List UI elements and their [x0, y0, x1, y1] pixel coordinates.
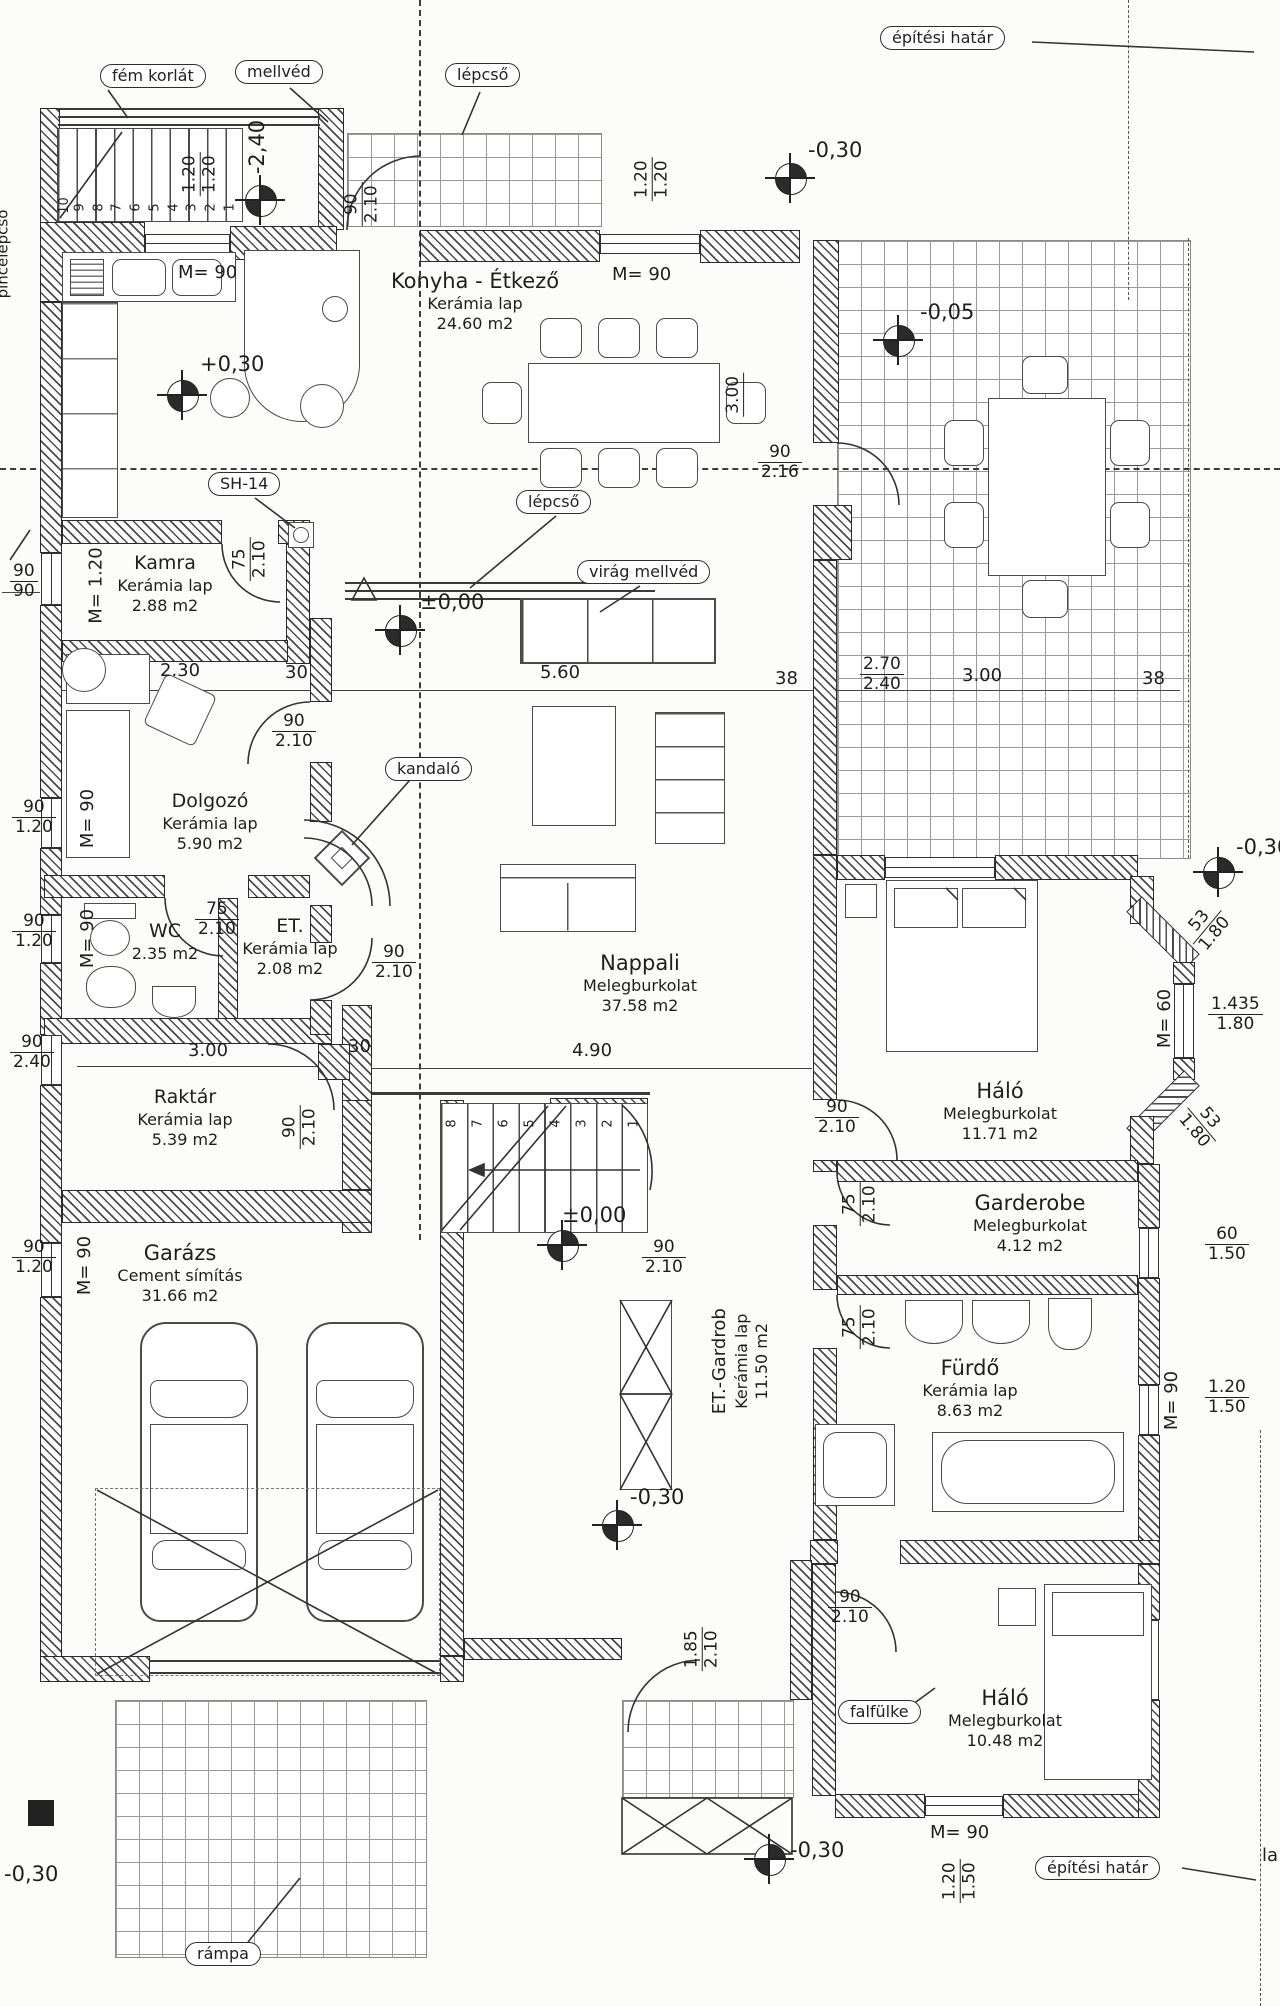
kitchen-stool [300, 384, 344, 428]
kitchen-west-counter [62, 302, 118, 518]
stair-number: 7 [110, 203, 125, 211]
wall-segment [310, 1000, 332, 1035]
furdo-window [1139, 1385, 1159, 1435]
level-value: -0,30 [808, 138, 862, 162]
wall-segment [40, 605, 62, 798]
room-label-halo1: Háló Melegburkolat 11.71 m2 [915, 1078, 1085, 1144]
wardrobe [620, 1300, 672, 1394]
room-label-et: ET. Kerámia lap 2.08 m2 [235, 915, 345, 979]
level-marker [383, 613, 417, 647]
kamra-window [41, 553, 62, 605]
wall-segment [790, 1560, 812, 1700]
leader-epitesi-hatar-bottom [1182, 1868, 1256, 1880]
wall-segment [837, 1160, 1138, 1182]
stair-number: 4 [549, 1119, 564, 1127]
dim-door: 902.10 [343, 182, 381, 226]
wall-segment [813, 505, 852, 560]
wall-segment [837, 855, 885, 880]
washbasin [905, 1300, 963, 1344]
stair-number: 9 [73, 203, 88, 211]
shelf-unit [655, 712, 725, 844]
dim-garderobe-window: 601.50 [1205, 1225, 1249, 1263]
wardrobe [620, 1394, 672, 1490]
dim-nappali-door: 902.10 [372, 943, 416, 981]
leader-fem-korlat [108, 90, 128, 118]
dining-chair [482, 382, 522, 424]
dim-terrace: 2.702.40 [860, 655, 904, 693]
dining-chair [656, 448, 698, 488]
room-label-nappali: Nappali Melegburkolat 37.58 m2 [550, 950, 730, 1016]
wall-segment [700, 230, 800, 263]
stair-number: 5 [523, 1119, 538, 1127]
level-value: +0,30 [200, 352, 264, 376]
dim-m90: M= 90 [612, 264, 671, 285]
car-windshield [316, 1380, 414, 1418]
level-value: ±0,00 [420, 590, 484, 614]
leader-epitesi-hatar-top [1032, 42, 1254, 52]
room-label-wc: WC 2.35 m2 [130, 920, 200, 964]
wall-segment [40, 1085, 62, 1243]
terrace-table [988, 398, 1106, 576]
callout-epitesi-hatar-bottom: építési határ [1035, 1856, 1160, 1880]
terrace-chair [1110, 502, 1150, 548]
dim-line [372, 1068, 812, 1069]
wall-segment [318, 1044, 350, 1080]
level-value: -0,30 [4, 1862, 58, 1886]
room-label-raktar: Raktár Kerámia lap 5.39 m2 [110, 1086, 260, 1150]
terrace-chair [944, 420, 984, 466]
edge-text-fragment: la [1262, 1845, 1278, 1866]
dim-m90: M= 90 [77, 909, 98, 968]
room-label-dolgozo: Dolgozó Kerámia lap 5.90 m2 [130, 790, 290, 854]
callout-kandalo: kandaló [385, 757, 472, 781]
room-label-garderobe: Garderobe Melegburkolat 4.12 m2 [930, 1190, 1130, 1256]
dim-490: 4.90 [572, 1040, 612, 1061]
dim-porch: 1.852.10 [683, 1627, 721, 1671]
stair-number: 8 [445, 1119, 460, 1127]
stair-number: 6 [497, 1119, 512, 1127]
room-label-kamra: Kamra Kerámia lap 2.88 m2 [90, 552, 240, 616]
railing-line [58, 124, 320, 126]
dim-garderobe-door: 752.10 [841, 1182, 879, 1226]
wall-segment [440, 1656, 464, 1682]
boiler-circle [293, 527, 309, 543]
room-label-etgardrob: ET.-Gardrob Kerámia lap 11.50 m2 [709, 1276, 772, 1446]
coffee-table [532, 706, 616, 826]
level-value: -0,05 [920, 300, 974, 324]
level-marker [773, 161, 807, 195]
callout-pincelepcso: pincelépcső [0, 210, 11, 299]
porch-x [622, 1798, 707, 1854]
floor-plan: -2,40 -0,30 +0,30 -0,05 ±0,00 -0,30 ±0,0… [0, 0, 1280, 2006]
level-marker [752, 1842, 786, 1876]
callout-sh14: SH-14 [208, 472, 280, 496]
pillow [962, 888, 1026, 928]
terrace-chair [1110, 420, 1150, 466]
terrace-chair [1022, 580, 1068, 618]
dim-560: 5.60 [540, 662, 580, 683]
dim-line [332, 690, 1180, 691]
wall-segment [1130, 1116, 1154, 1164]
wall-segment [813, 1160, 837, 1172]
level-value: -0,30 [790, 1838, 844, 1862]
callout-lepcso-top: lépcső [445, 63, 520, 87]
callout-virag-mellved: virág mellvéd [577, 560, 710, 584]
leader-lepcso-mid [470, 516, 556, 588]
toilet-bowl [1048, 1298, 1092, 1350]
level-value: -0,30 [1236, 835, 1280, 859]
garderobe-window [1139, 1228, 1159, 1278]
dim-bay-window: 1.4351.80 [1208, 995, 1263, 1033]
wall-segment [40, 302, 62, 553]
porch-tiles [622, 1700, 794, 1798]
axis-vertical [419, 0, 421, 1240]
dim-west: 901.20 [12, 1238, 56, 1276]
sink-bowl [112, 259, 166, 296]
stair-number: 1 [223, 203, 238, 211]
halo1-window [885, 857, 995, 878]
leader-kandalo [352, 780, 410, 845]
dim-halo2-window: 1.201.50 [941, 1859, 979, 1903]
dim-furdo-window: 1.201.50 [1205, 1378, 1249, 1416]
dim-dolgozo-door: 902.10 [272, 712, 316, 750]
kitchen-sink-window [145, 234, 230, 254]
dim-line [77, 1066, 350, 1067]
level-marker [165, 378, 199, 412]
wall-segment [310, 618, 332, 702]
dim-30: 30 [285, 662, 308, 683]
dim-38: 38 [775, 668, 798, 689]
dim-38: 38 [1142, 668, 1165, 689]
callout-lepcso-mid: lépcső [516, 490, 591, 514]
bidet [86, 966, 136, 1008]
wall-segment [342, 1100, 372, 1190]
side-chair [143, 673, 217, 747]
dining-chair [656, 318, 698, 358]
stair-number: 6 [129, 203, 144, 211]
room-label-furdo: Fürdő Kerámia lap 8.63 m2 [885, 1355, 1055, 1421]
car-windshield [150, 1380, 248, 1418]
sofa [500, 864, 636, 932]
stair-number: 2 [204, 203, 219, 211]
dim-m90: M= 90 [74, 1236, 95, 1295]
dim-wc-door: 752.10 [195, 900, 239, 938]
terrace-chair [944, 502, 984, 548]
leader-lepcso-top [462, 92, 480, 135]
dim-furdo-door: 752.10 [841, 1305, 879, 1349]
boundary-line-terrace [1188, 238, 1189, 858]
dim-m90: M= 90 [1161, 1371, 1182, 1430]
dim-230: 2.30 [160, 660, 200, 681]
railing-line [58, 108, 320, 110]
wall-segment [810, 1540, 838, 1564]
dim-m90: M= 90 [930, 1822, 989, 1843]
virag-mellved-window [520, 598, 716, 664]
dining-chair [598, 318, 640, 358]
upper-landing-tiles [347, 133, 602, 227]
dim-window: 1.201.20 [633, 157, 671, 201]
wall-segment [62, 520, 222, 544]
bathtub-inner [941, 1440, 1115, 1504]
level-marker [545, 1228, 579, 1262]
boundary-line-top [1128, 0, 1129, 300]
dim-halo1-door: 902.10 [815, 1098, 859, 1136]
leader-pincelepcso [10, 530, 30, 560]
wall-segment [813, 240, 839, 443]
wall-segment [62, 1190, 372, 1223]
step-line [345, 590, 655, 592]
wall-segment [813, 560, 837, 855]
wall-segment [420, 230, 600, 262]
level-marker [881, 323, 915, 357]
wall-segment [837, 1275, 1138, 1295]
dim-corridor-door: 902.10 [642, 1238, 686, 1276]
stair-number: 3 [185, 203, 200, 211]
level-marker [600, 1508, 634, 1542]
kitchen-stool [322, 296, 348, 322]
dim-terrace-door: 902.16 [758, 443, 802, 481]
stair-number: 5 [148, 203, 163, 211]
stair-number: 10 [57, 197, 72, 214]
porch-x [622, 1798, 707, 1854]
nightstand [845, 884, 877, 918]
callout-fem-korlat: fém korlát [100, 64, 206, 88]
shower-inner [823, 1432, 887, 1498]
nightstand [998, 1588, 1036, 1626]
dim-30: 30 [348, 1036, 371, 1057]
dining-chair [540, 448, 582, 488]
wall-segment [248, 875, 310, 898]
stair-number: 7 [471, 1119, 486, 1127]
stair-number: 3 [575, 1119, 590, 1127]
dim-dining: 3.00 [724, 373, 744, 417]
level-value: -2,40 [245, 120, 269, 174]
dining-chair [598, 448, 640, 488]
wall-segment [1138, 1278, 1160, 1385]
railing-line [58, 116, 320, 118]
wall-segment [835, 1794, 925, 1818]
halo1-bay-window [1174, 984, 1194, 1058]
nappali-south-line [372, 1092, 650, 1095]
wall-segment [900, 1540, 1160, 1564]
dim-m60: M= 60 [1154, 989, 1175, 1048]
wall-segment [1173, 962, 1195, 984]
dim-m90: M= 90 [178, 262, 237, 283]
dim-kamra-window: 9090 [10, 562, 38, 600]
dining-table [528, 363, 720, 443]
dim-window: 1.201.20 [181, 152, 219, 196]
callout-epitesi-hatar-top: építési határ [880, 26, 1005, 50]
dim-west: 901.20 [12, 798, 56, 836]
terrace-chair [1022, 356, 1068, 394]
stair-number: 1 [627, 1119, 642, 1127]
stair-number: 2 [601, 1119, 616, 1127]
dim-west: 901.20 [12, 912, 56, 950]
level-marker [1201, 855, 1235, 889]
washbasin [972, 1300, 1030, 1344]
room-label-garazs: Garázs Cement símítás 31.66 m2 [95, 1240, 265, 1306]
sink-drainer [70, 259, 104, 296]
wall-segment [813, 855, 837, 1100]
wall-segment [40, 1297, 62, 1678]
pillow [1052, 1592, 1144, 1636]
corner-basin [152, 986, 196, 1018]
ramp-tiles [115, 1700, 427, 1958]
callout-rampa: rámpa [185, 1942, 261, 1966]
room-label-halo2: Háló Melegburkolat 10.48 m2 [915, 1685, 1095, 1751]
dining-north-window [600, 234, 700, 254]
wall-segment [318, 108, 344, 230]
dim-halo2-door: 902.10 [828, 1588, 872, 1626]
dim-raktar-width: 3.00 [188, 1040, 228, 1061]
wall-segment [464, 1638, 622, 1660]
boundary-line-bottom [1260, 1430, 1261, 2006]
room-label-konyha: Konyha - Étkező Kerámia lap 24.60 m2 [360, 268, 590, 334]
wall-segment [813, 1225, 837, 1290]
dim-300: 3.00 [962, 665, 1002, 686]
halo2-south-window [925, 1796, 1003, 1816]
desk-chair [62, 648, 106, 692]
wall-segment [44, 875, 165, 898]
pillow [894, 888, 958, 928]
level-value: ±0,00 [562, 1203, 626, 1227]
wall-segment [1138, 1164, 1160, 1228]
wall-segment [310, 762, 332, 822]
stair-number: 4 [167, 203, 182, 211]
callout-mellved: mellvéd [235, 60, 323, 84]
callout-falfulke: falfülke [838, 1700, 921, 1724]
level-value: -0,30 [630, 1485, 684, 1509]
wall-segment [286, 544, 310, 664]
wall-segment [1003, 1794, 1160, 1818]
dim-raktar-door: 902.10 [281, 1105, 319, 1149]
stair-number: 8 [92, 203, 107, 211]
wall-segment [995, 855, 1138, 880]
level-marker [243, 183, 277, 217]
boundary-stone [28, 1800, 54, 1826]
garage-door-zone [95, 1488, 440, 1676]
kitchen-stool [210, 378, 250, 418]
dim-m90: M= 90 [77, 789, 98, 848]
dim-west: 902.40 [10, 1033, 54, 1071]
